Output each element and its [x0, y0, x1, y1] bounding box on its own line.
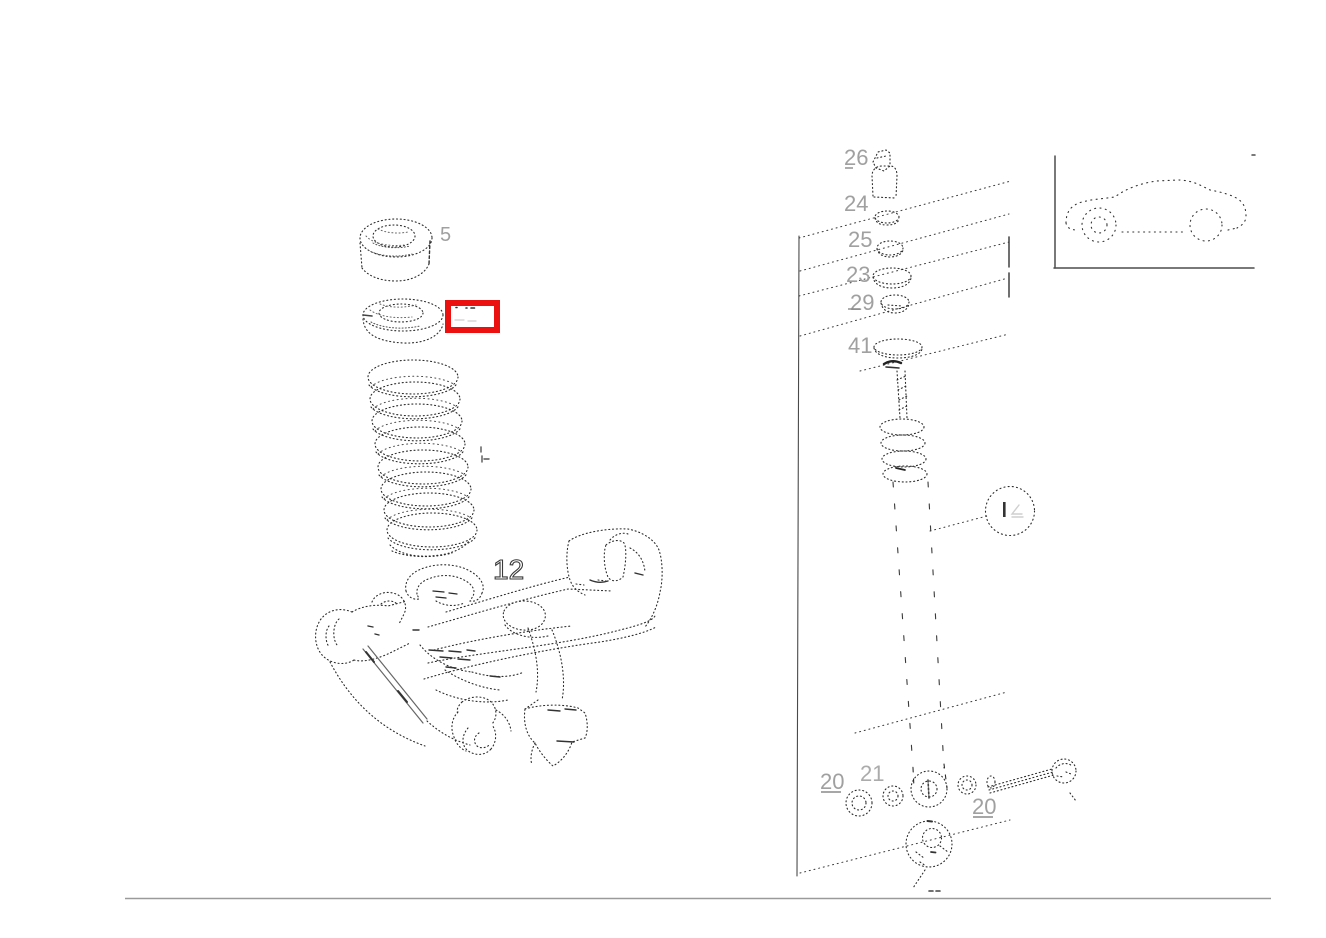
svg-text:41: 41 — [848, 333, 872, 358]
svg-text:25: 25 — [848, 227, 872, 252]
svg-text:5: 5 — [440, 224, 451, 246]
svg-text:24: 24 — [844, 191, 868, 216]
svg-text:20: 20 — [820, 769, 844, 794]
svg-text:26: 26 — [844, 145, 868, 170]
svg-text:23: 23 — [846, 262, 870, 287]
svg-text:29: 29 — [850, 290, 874, 315]
svg-text:12: 12 — [493, 554, 524, 585]
svg-text:21: 21 — [860, 761, 884, 786]
svg-text:20: 20 — [972, 794, 996, 819]
